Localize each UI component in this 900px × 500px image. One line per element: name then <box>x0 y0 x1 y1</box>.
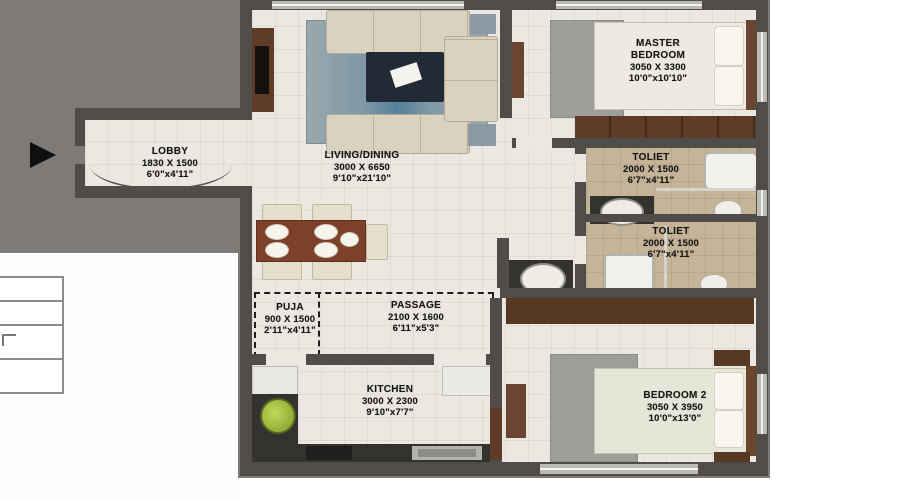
room-label-bedroom-2: BEDROOM 2 3050 X 3950 10'0"x13'0" <box>594 390 756 424</box>
sofa-right <box>444 36 498 122</box>
master-wardrobe <box>575 116 756 140</box>
bedroom2-side-cabinet <box>506 384 526 438</box>
room-label-puja: PUJA 900 X 1500 2'11"x4'11" <box>248 302 332 336</box>
nightstand <box>714 350 750 366</box>
refrigerator <box>252 366 298 396</box>
window-bedroom2-bottom <box>540 464 698 474</box>
window-bedroom2-right <box>757 374 767 434</box>
dining-chair <box>366 224 388 260</box>
room-dim-ft: 10'0"x13'0" <box>594 413 756 424</box>
key-plan <box>0 276 64 394</box>
key-plan-line <box>0 358 62 360</box>
room-label-lobby: LOBBY 1830 X 1500 6'0"x4'11" <box>100 146 240 180</box>
room-dim-mm: 3000 X 6650 <box>278 162 446 173</box>
side-table-bottom <box>468 124 496 146</box>
master-headboard <box>746 20 756 110</box>
nightstand <box>714 452 750 462</box>
key-plan-line <box>0 300 62 302</box>
bedroom2-wardrobe <box>506 298 754 324</box>
wall-lobby-left-a <box>75 108 85 146</box>
room-dim-ft: 6'7"x4'11" <box>606 249 736 260</box>
plate <box>265 224 289 240</box>
room-dim-mm: 1830 X 1500 <box>100 158 240 169</box>
room-dim-ft: 6'7"x4'11" <box>586 175 716 186</box>
room-dim-mm: 3000 X 2300 <box>308 396 472 407</box>
room-name: LIVING/DINING <box>278 150 446 162</box>
room-dim-ft: 9'10"x21'10" <box>278 173 446 184</box>
kitchen-door-opening <box>434 353 486 366</box>
room-name: LOBBY <box>100 146 240 158</box>
kitchen-sink-round <box>260 398 296 434</box>
dining-chair <box>262 260 302 280</box>
wall-bedroom2-top <box>500 288 756 298</box>
room-dim-ft: 6'0"x4'11" <box>100 169 240 180</box>
room-dim-ft: 10'0"x10'10" <box>608 73 708 84</box>
window-living <box>272 1 464 9</box>
wall-lobby-top <box>75 108 252 120</box>
window-master-top <box>556 1 702 9</box>
room-name: BEDROOM 2 <box>594 390 756 402</box>
key-plan-line <box>0 324 62 326</box>
wall-toilet-divider <box>586 214 756 222</box>
floor-plan-page: LOBBY 1830 X 1500 6'0"x4'11" LIVING/DINI… <box>0 0 900 500</box>
plate <box>314 242 338 258</box>
bedroom2-door <box>490 408 502 460</box>
entrance-arrow-icon <box>30 142 56 168</box>
window-master-right <box>757 32 767 102</box>
room-dim-mm: 3050 X 3300 <box>608 62 708 73</box>
wall-master-left <box>500 0 512 118</box>
side-table-top <box>470 14 496 34</box>
room-name: PASSAGE <box>342 300 490 312</box>
shower-partition <box>656 188 756 191</box>
toilet1-door-opening <box>575 154 586 182</box>
room-name: PUJA <box>248 302 332 314</box>
tv <box>255 46 269 94</box>
room-dim-mm: 2000 X 1500 <box>606 238 736 249</box>
pillow <box>714 26 744 66</box>
room-name: KITCHEN <box>308 384 472 396</box>
room-label-toilet-2: TOLIET 2000 X 1500 6'7"x4'11" <box>606 226 736 260</box>
room-dim-mm: 2100 X 1600 <box>342 312 490 323</box>
room-label-passage: PASSAGE 2100 X 1600 6'11"x5'3" <box>342 300 490 334</box>
toilet2-door-opening <box>575 236 586 264</box>
room-name: TOLIET <box>606 226 736 238</box>
room-dim-mm: 3050 X 3950 <box>594 402 756 413</box>
wall-left-upper <box>240 0 252 114</box>
room-label-master-bedroom: MASTER BEDROOM 3050 X 3300 10'0"x10'10" <box>608 38 708 84</box>
room-dim-ft: 2'11"x4'11" <box>248 325 332 336</box>
room-name: MASTER BEDROOM <box>608 38 708 62</box>
window-toilet <box>757 190 767 216</box>
plate <box>314 224 338 240</box>
room-dim-mm: 900 X 1500 <box>248 314 332 325</box>
dining-chair <box>312 260 352 280</box>
pillow <box>714 66 744 106</box>
stove <box>306 446 352 460</box>
room-label-living-dining: LIVING/DINING 3000 X 6650 9'10"x21'10" <box>278 150 446 184</box>
kitchen-sink-basin <box>418 449 476 457</box>
plate <box>340 232 359 247</box>
room-label-kitchen: KITCHEN 3000 X 2300 9'10"x7'7" <box>308 384 472 418</box>
master-door-opening <box>516 137 552 149</box>
wall-passage-right <box>497 238 509 288</box>
room-dim-mm: 2000 X 1500 <box>586 164 716 175</box>
room-name: TOLIET <box>586 152 716 164</box>
wall-lobby-left-b <box>75 164 85 198</box>
key-plan-mark <box>2 334 16 346</box>
puja-door-opening <box>266 353 306 366</box>
room-label-toilet-1: TOLIET 2000 X 1500 6'7"x4'11" <box>586 152 716 186</box>
room-dim-ft: 9'10"x7'7" <box>308 407 472 418</box>
room-dim-ft: 6'11"x5'3" <box>342 323 490 334</box>
plate <box>265 242 289 258</box>
